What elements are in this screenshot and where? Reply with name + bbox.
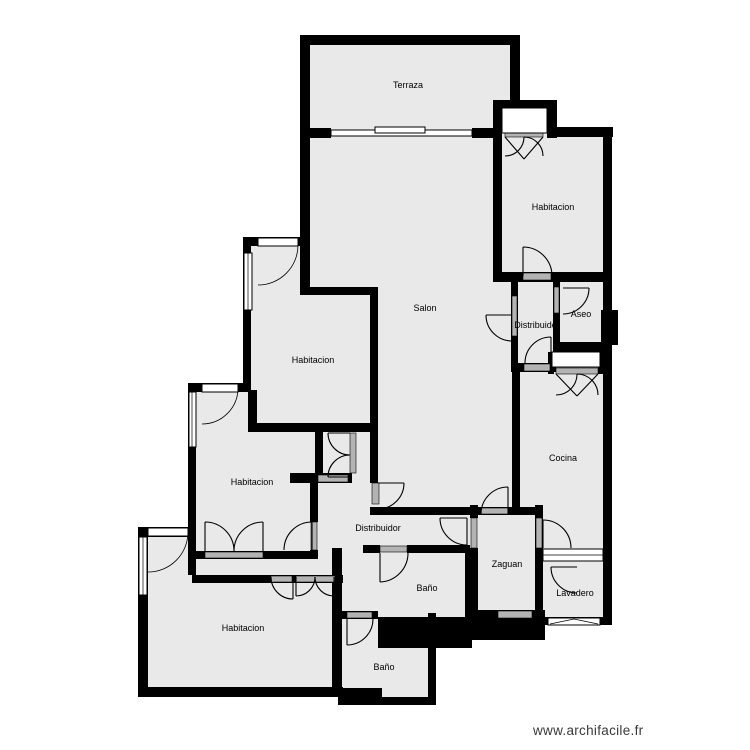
floor-plan: Terraza Habitacion Salon Habitacion Aseo… [0, 0, 750, 750]
bay-window-box [502, 108, 547, 133]
room-label-habitacion-l: Habitacion [231, 477, 274, 487]
window [189, 392, 196, 447]
hatch-window [552, 352, 600, 367]
room-label-zaguan: Zaguan [492, 559, 523, 569]
window [258, 238, 298, 246]
room-label-lavadero: Lavadero [556, 588, 594, 598]
watermark: www.archifacile.fr [533, 723, 733, 738]
room-label-salon: Salon [413, 303, 436, 313]
room-label-terraza: Terraza [393, 80, 423, 90]
room-label-habitacion-bl: Habitacion [222, 623, 265, 633]
window [202, 384, 238, 392]
room-label-bano-1: Baño [416, 583, 437, 593]
terrace-sliding-window-leaf [375, 127, 425, 133]
room-label-habitacion-tr: Habitacion [532, 202, 575, 212]
window [148, 528, 188, 536]
room-label-aseo: Aseo [571, 309, 592, 319]
room-label-habitacion-ml: Habitacion [292, 355, 335, 365]
room-label-distribuidor-1: Distribuidor [514, 320, 560, 330]
room-label-distribuidor-2: Distribuidor [355, 523, 401, 533]
room-label-cocina: Cocina [549, 453, 577, 463]
room-label-bano-2: Baño [373, 662, 394, 672]
floor-plan-canvas: Terraza Habitacion Salon Habitacion Aseo… [0, 0, 750, 750]
